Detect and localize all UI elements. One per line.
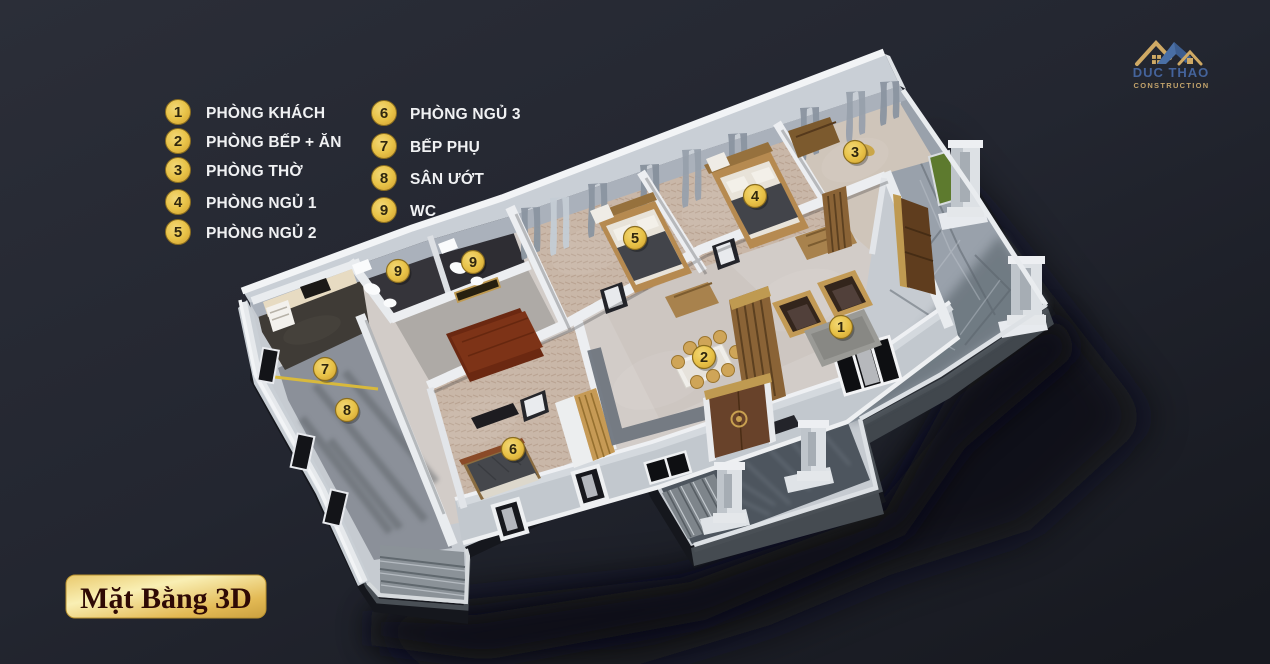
svg-text:8: 8	[380, 170, 388, 187]
svg-text:9: 9	[380, 202, 388, 219]
svg-text:PHÒNG KHÁCH: PHÒNG KHÁCH	[206, 104, 325, 122]
svg-text:5: 5	[174, 224, 182, 241]
svg-text:3: 3	[851, 145, 859, 161]
svg-text:2: 2	[700, 350, 708, 366]
svg-text:2: 2	[174, 133, 182, 150]
svg-text:WC: WC	[410, 203, 436, 220]
svg-text:Mặt Bằng 3D: Mặt Bằng 3D	[80, 582, 252, 615]
svg-text:4: 4	[751, 189, 759, 205]
svg-text:PHÒNG NGỦ 2: PHÒNG NGỦ 2	[206, 224, 317, 242]
svg-text:3: 3	[174, 162, 182, 179]
svg-text:1: 1	[837, 320, 845, 336]
svg-text:SÂN ƯỚT: SÂN ƯỚT	[410, 170, 484, 188]
svg-text:PHÒNG THỜ: PHÒNG THỜ	[206, 162, 303, 180]
svg-text:7: 7	[380, 138, 388, 155]
svg-text:BẾP PHỤ: BẾP PHỤ	[410, 139, 480, 156]
svg-text:9: 9	[394, 264, 402, 280]
svg-text:CONSTRUCTION: CONSTRUCTION	[1133, 81, 1209, 90]
svg-text:PHÒNG BẾP + ĂN: PHÒNG BẾP + ĂN	[206, 133, 342, 151]
svg-text:6: 6	[509, 442, 517, 458]
svg-text:7: 7	[321, 362, 329, 378]
svg-text:5: 5	[631, 231, 639, 247]
svg-text:PHÒNG NGỦ 1: PHÒNG NGỦ 1	[206, 194, 317, 212]
svg-text:DUC THAO: DUC THAO	[1133, 65, 1210, 80]
svg-text:4: 4	[174, 194, 183, 211]
svg-text:1: 1	[174, 104, 182, 121]
svg-text:8: 8	[343, 403, 351, 419]
svg-text:PHÒNG NGỦ 3: PHÒNG NGỦ 3	[410, 105, 521, 123]
svg-text:9: 9	[469, 255, 477, 271]
svg-text:6: 6	[380, 105, 388, 122]
